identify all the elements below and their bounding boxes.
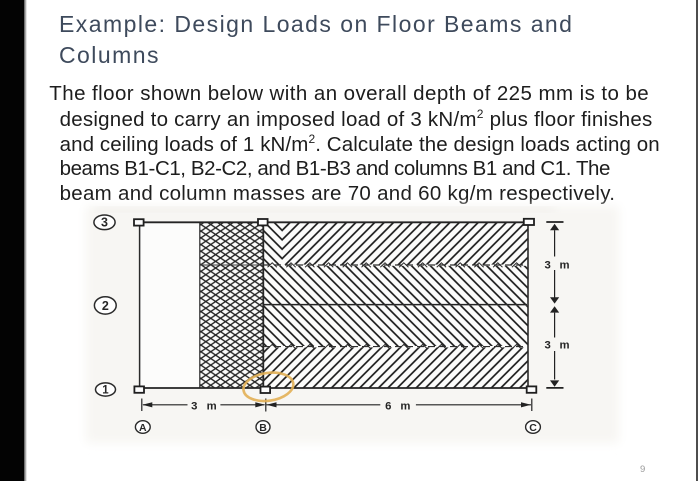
svg-text:3: 3 xyxy=(545,259,551,271)
svg-text:2: 2 xyxy=(102,299,109,313)
svg-text:1: 1 xyxy=(102,384,109,396)
svg-text:3: 3 xyxy=(101,215,108,229)
svg-text:m: m xyxy=(560,259,570,271)
svg-text:C: C xyxy=(529,422,537,434)
svg-text:m: m xyxy=(560,339,570,351)
svg-text:A: A xyxy=(139,422,147,434)
svg-text:3: 3 xyxy=(191,400,197,412)
svg-text:3: 3 xyxy=(545,339,551,351)
svg-text:m: m xyxy=(400,400,410,412)
svg-text:B: B xyxy=(259,422,267,434)
svg-text:6: 6 xyxy=(385,400,391,412)
svg-text:m: m xyxy=(207,400,217,412)
